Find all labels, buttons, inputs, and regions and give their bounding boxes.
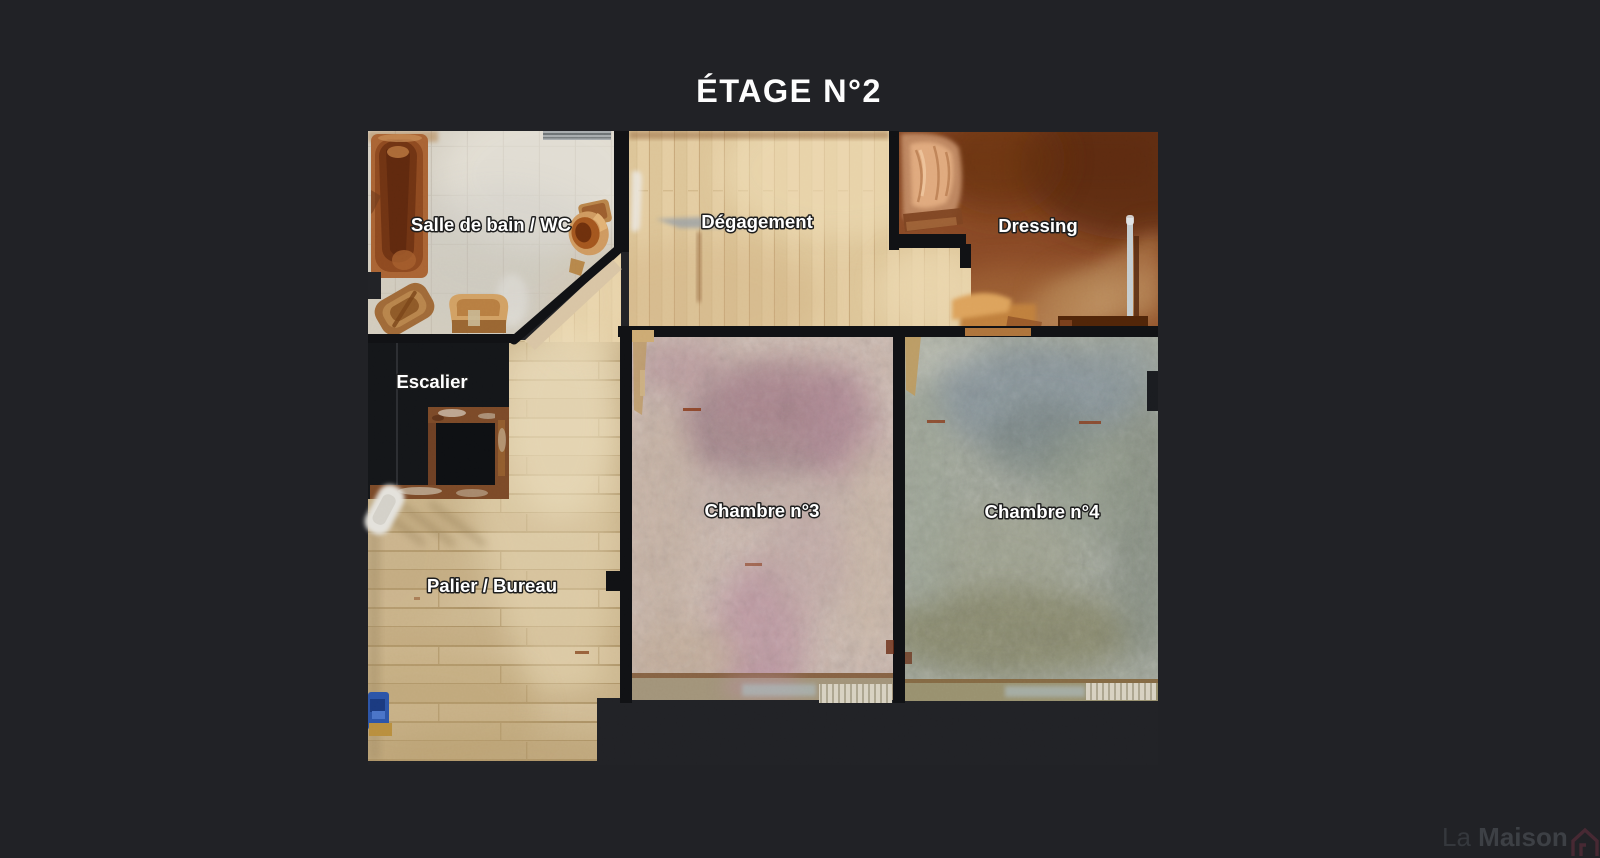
svg-text:La Maison: La Maison xyxy=(1442,822,1568,852)
svg-text:Dégagement: Dégagement xyxy=(701,211,813,232)
svg-text:Salle de bain / WC: Salle de bain / WC xyxy=(411,214,571,235)
svg-text:Palier / Bureau: Palier / Bureau xyxy=(427,575,557,596)
svg-text:Chambre n°4: Chambre n°4 xyxy=(985,501,1101,522)
svg-text:Escalier: Escalier xyxy=(396,371,467,392)
svg-text:Dressing: Dressing xyxy=(998,215,1078,236)
svg-text:Chambre n°3: Chambre n°3 xyxy=(705,500,820,521)
svg-text:ÉTAGE N°2: ÉTAGE N°2 xyxy=(696,72,882,109)
